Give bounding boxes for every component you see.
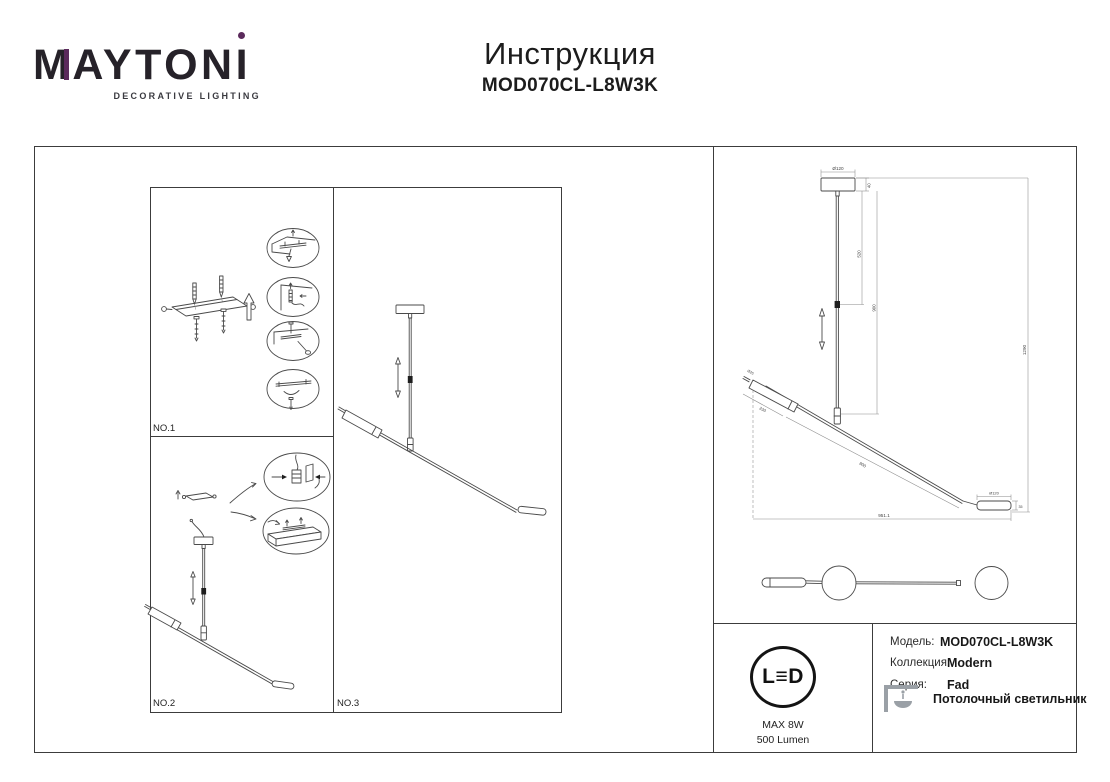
ceiling-canopy — [821, 178, 855, 191]
dimensioned-side-view: Ø120 40 520 900 1290 Ø25 230 800 — [715, 150, 1075, 540]
collection-row-value: Modern — [947, 656, 992, 670]
step1-callout-4 — [267, 370, 319, 410]
rod-connector — [408, 376, 413, 383]
updown-arrow-icon — [396, 358, 401, 398]
led-badge-l: L — [762, 665, 775, 689]
step3-assembled-lamp-drawing — [334, 188, 561, 712]
end-tube — [977, 501, 1011, 510]
led-badge-e-bars: ≡ — [775, 664, 788, 689]
dim-canopy-diameter: Ø120 — [832, 166, 844, 171]
step1-mounting-bracket-drawing — [151, 188, 332, 435]
ceiling-canopy — [396, 305, 424, 314]
max-power-label: MAX 8W — [723, 719, 843, 731]
dim-rod-total: 900 — [871, 304, 876, 312]
instruction-sheet: MAYTONI DECORATIVE LIGHTING Инструкция M… — [0, 0, 1110, 782]
led-badge: L≡D — [750, 646, 816, 708]
document-title-block: Инструкция MOD070CL-L8W3K — [380, 36, 760, 97]
step2-callout-wiring — [264, 453, 330, 501]
dim-canopy-height: 40 — [867, 183, 872, 188]
logo-letter-i: I — [236, 41, 251, 89]
canopy-top-view — [822, 566, 856, 600]
main-vertical-divider — [713, 146, 714, 753]
assembled-lamp — [338, 305, 546, 515]
dim-rod-upper: 520 — [856, 250, 861, 258]
screw — [221, 309, 226, 333]
lamp-top-view — [742, 548, 1072, 620]
step1-callout-1 — [267, 229, 319, 268]
maytoni-logo: MAYTONI DECORATIVE LIGHTING — [33, 44, 265, 104]
wall-anchor — [220, 276, 223, 302]
updown-arrow-icon — [820, 309, 825, 350]
shade-circle-top-view — [975, 567, 1008, 600]
updown-arrow-icon — [191, 572, 195, 605]
callout-arrows — [230, 483, 256, 521]
dimension-lines: Ø120 40 520 900 1290 Ø25 230 800 — [743, 166, 1030, 521]
ceiling-lamp-icon — [884, 684, 924, 714]
dim-overall-width: 951.1 — [878, 513, 890, 518]
mounting-bracket — [162, 276, 256, 341]
dim-total-height: 1290 — [1022, 344, 1027, 355]
led-badge-d: D — [788, 665, 804, 689]
bracket-mini — [176, 491, 216, 501]
step1-callout-2 — [267, 278, 319, 317]
dim-end-tube: Ø120 — [989, 491, 1000, 496]
lamp-bar — [359, 421, 517, 511]
series-row-value: Fad — [947, 678, 969, 692]
screw — [194, 317, 199, 342]
lumen-label: 500 Lumen — [723, 734, 843, 746]
lamp-shade — [342, 410, 382, 438]
end-tube — [272, 680, 295, 689]
lamp-shade — [148, 607, 181, 630]
dim-tip-diameter: Ø25 — [747, 369, 755, 376]
model-row-label: Модель: — [890, 636, 934, 648]
model-number-heading: MOD070CL-L8W3K — [380, 75, 760, 97]
step2-assembly-drawing — [151, 437, 332, 712]
logo-letters-mid: AYTON — [72, 41, 235, 89]
fixture-type-label: Потолочный светильник — [933, 692, 1087, 706]
page-title: Инструкция — [380, 36, 760, 72]
shade-top-view — [762, 578, 806, 587]
collection-row-label: Коллекция: — [890, 657, 950, 669]
logo-accent-bar — [64, 49, 69, 80]
end-tube — [518, 506, 547, 515]
dim-bar-length: 800 — [858, 461, 867, 469]
logo-accent-dot — [238, 32, 245, 39]
dim-end-tube-height: 35 — [1019, 505, 1023, 509]
rod-connector — [835, 301, 840, 308]
logo-wordmark: MAYTONI — [33, 44, 265, 87]
rod-connector — [201, 588, 206, 595]
lamp-shade — [749, 380, 798, 412]
power-wire — [192, 522, 204, 538]
step2-callout-bracket-mount — [263, 508, 329, 554]
table-top-divider — [713, 623, 1077, 624]
step1-callout-3 — [267, 322, 319, 361]
table-cell-divider — [872, 623, 873, 753]
logo-tagline: DECORATIVE LIGHTING — [33, 91, 261, 101]
lamp-bar — [166, 621, 279, 686]
model-row-value: MOD070CL-L8W3K — [940, 635, 1053, 649]
